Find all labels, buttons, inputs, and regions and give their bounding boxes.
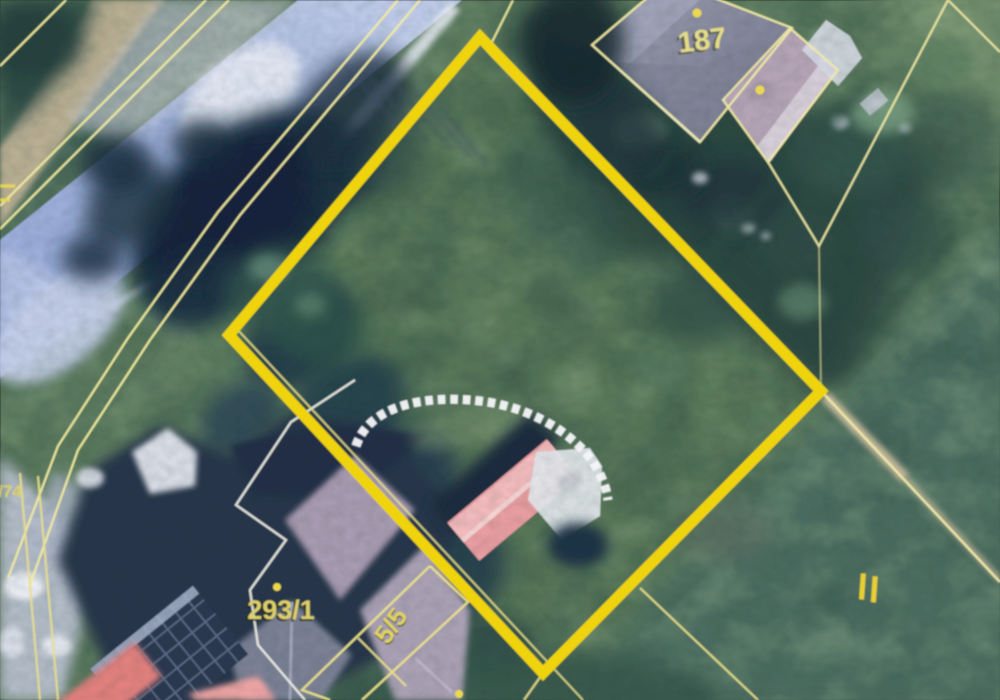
svg-text:187: 187 (676, 22, 728, 60)
svg-text:293/1: 293/1 (247, 595, 315, 625)
svg-text:/74: /74 (0, 482, 22, 501)
